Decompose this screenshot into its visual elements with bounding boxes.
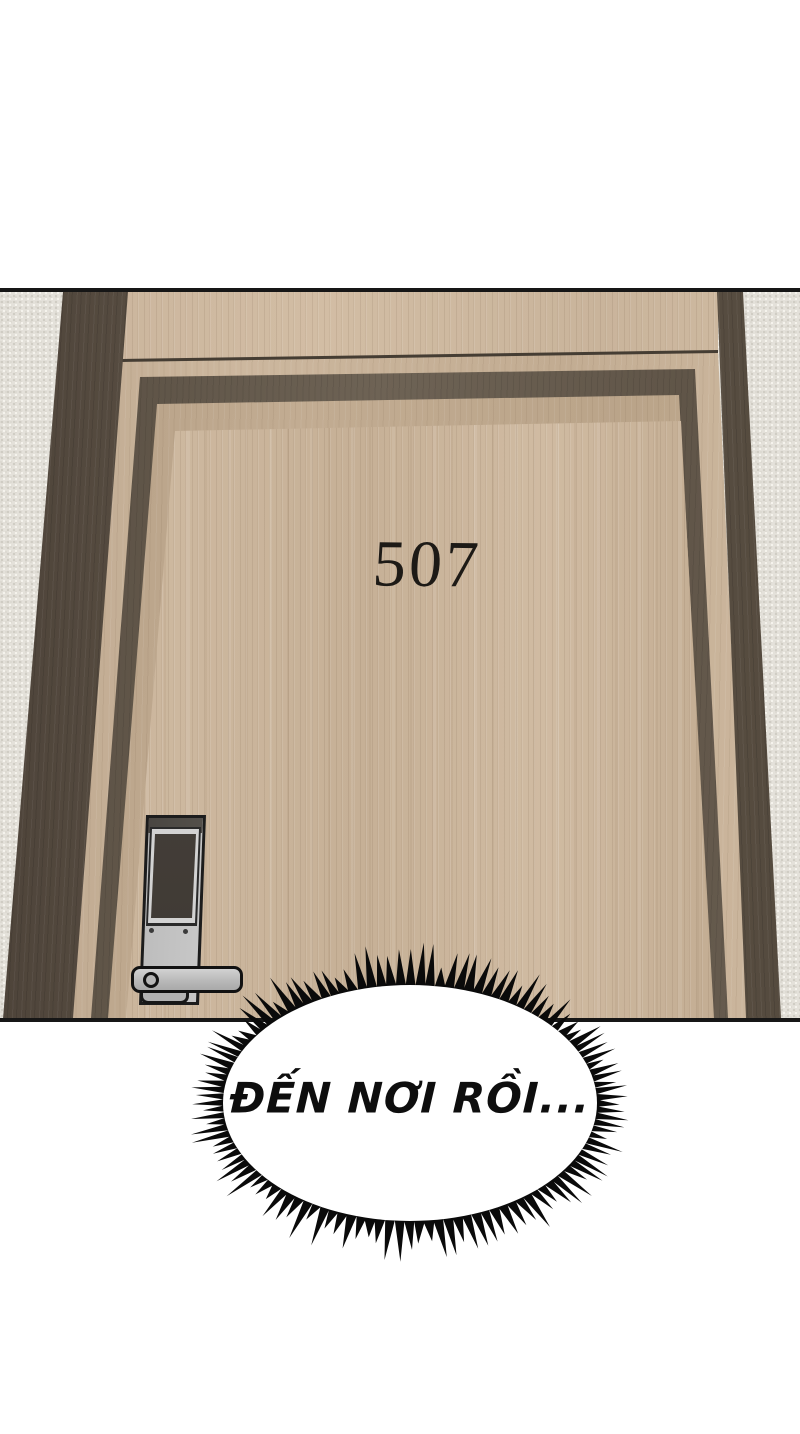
door-number-label: 507: [360, 535, 494, 598]
comic-panel: 507: [0, 288, 800, 1022]
speech-bubble: ĐẾN NƠI RỒI...: [150, 930, 670, 1275]
panel-top-border: [0, 288, 800, 292]
webtoon-page: 507 ĐẾN NƠI RỒI...: [0, 0, 800, 1434]
speech-bubble-text: ĐẾN NƠI RỒI...: [229, 1074, 591, 1123]
